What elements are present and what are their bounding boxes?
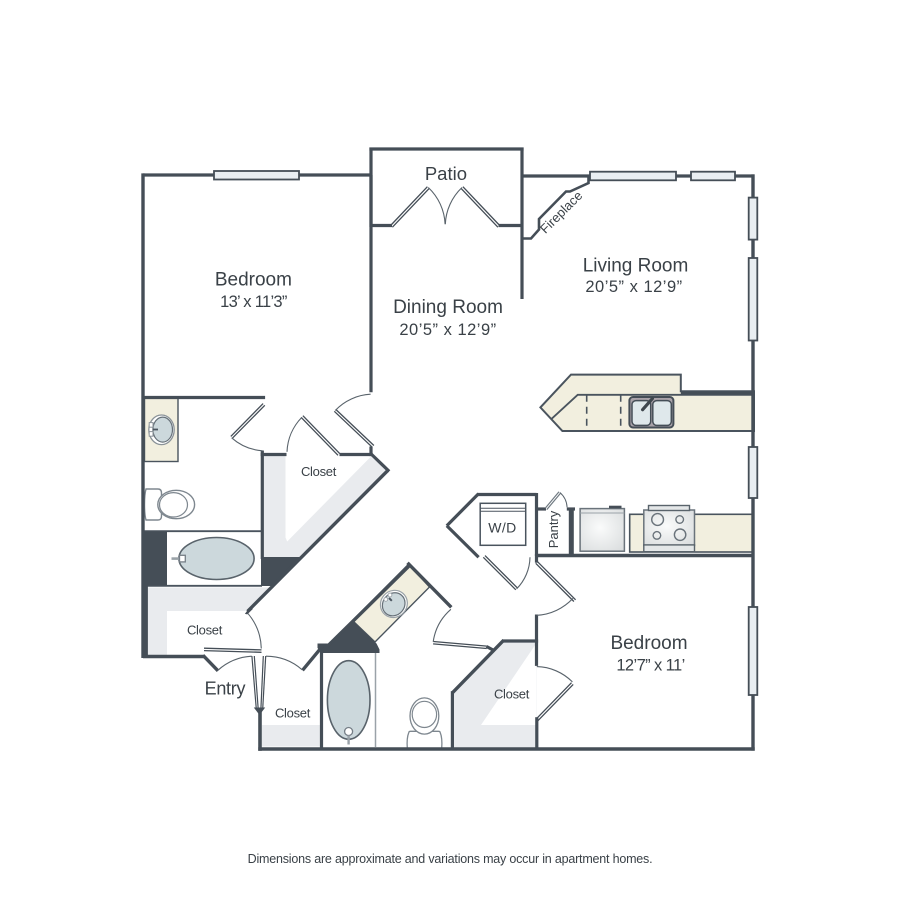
svg-text:13’ x 11’3”: 13’ x 11’3” <box>220 293 287 311</box>
svg-text:Entry: Entry <box>205 678 246 698</box>
svg-text:Living Room: Living Room <box>583 256 689 277</box>
svg-text:20’5” x 12’9”: 20’5” x 12’9” <box>399 321 496 339</box>
svg-text:Closet: Closet <box>301 464 337 479</box>
svg-text:Bedroom: Bedroom <box>610 633 687 654</box>
svg-text:Pantry: Pantry <box>546 510 561 548</box>
svg-text:12’7” x 11’: 12’7” x 11’ <box>616 657 684 675</box>
svg-text:Closet: Closet <box>494 687 530 702</box>
svg-text:20’5” x 12’9”: 20’5” x 12’9” <box>585 278 682 296</box>
svg-text:Dimensions are approximate and: Dimensions are approximate and variation… <box>248 852 653 866</box>
svg-text:Patio: Patio <box>425 163 467 184</box>
svg-text:Dining Room: Dining Room <box>393 297 503 318</box>
svg-text:Closet: Closet <box>275 706 311 721</box>
svg-text:Bedroom: Bedroom <box>215 269 292 290</box>
svg-text:W/D: W/D <box>488 520 516 536</box>
svg-text:Closet: Closet <box>187 623 223 638</box>
